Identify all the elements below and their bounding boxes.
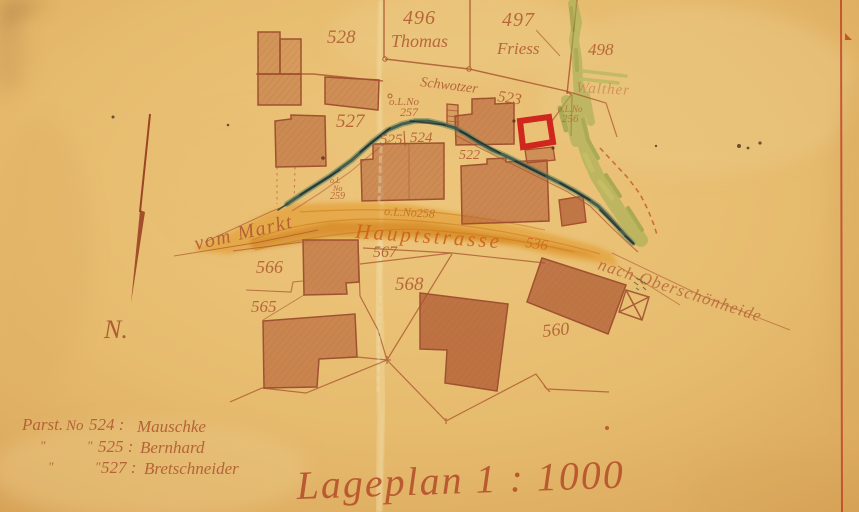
- svg-text:No: No: [65, 418, 84, 434]
- svg-text:Walther: Walther: [576, 80, 631, 99]
- svg-text:496: 496: [403, 7, 436, 29]
- svg-text:Mauschke: Mauschke: [136, 417, 206, 436]
- svg-text:566: 566: [256, 257, 283, 277]
- svg-text:Bernhard: Bernhard: [140, 438, 205, 457]
- svg-text:Thomas: Thomas: [391, 31, 448, 51]
- svg-text:527 :: 527 :: [101, 458, 136, 477]
- svg-text:497: 497: [502, 9, 535, 31]
- svg-text:256: 256: [562, 113, 579, 125]
- svg-text:565: 565: [251, 297, 277, 316]
- svg-text:Friess: Friess: [496, 39, 540, 58]
- svg-text:567: 567: [373, 244, 398, 261]
- svg-text:259: 259: [330, 191, 345, 202]
- svg-text:524 :: 524 :: [89, 415, 124, 434]
- svg-text:528: 528: [327, 27, 356, 48]
- svg-text:524: 524: [410, 130, 433, 146]
- svg-text:498: 498: [588, 40, 614, 59]
- svg-text:o.L.No258: o.L.No258: [384, 204, 435, 221]
- svg-text:N.: N.: [103, 315, 128, 344]
- svg-text:″: ″: [87, 438, 93, 453]
- svg-text:Parst.: Parst.: [21, 415, 63, 434]
- svg-text:″: ″: [48, 459, 54, 474]
- svg-text:536: 536: [524, 235, 549, 254]
- svg-text:522: 522: [459, 148, 480, 163]
- svg-text:Bretschneider: Bretschneider: [144, 459, 239, 478]
- svg-text:525 :: 525 :: [98, 437, 133, 456]
- svg-text:527: 527: [336, 111, 366, 132]
- svg-text:525: 525: [380, 132, 403, 148]
- svg-text:″: ″: [40, 438, 46, 453]
- svg-text:257: 257: [400, 105, 419, 119]
- svg-text:560: 560: [541, 318, 570, 341]
- svg-text:568: 568: [395, 274, 424, 295]
